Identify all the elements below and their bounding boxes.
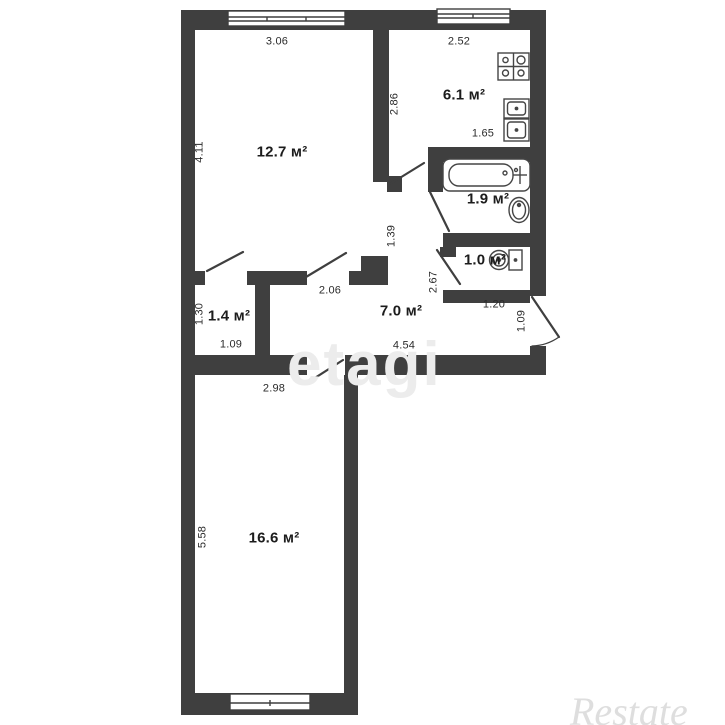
wall-bath-left bbox=[428, 147, 443, 192]
dim-wc-width: 1.20 bbox=[483, 300, 505, 311]
wall-living1-bottom-b bbox=[247, 271, 307, 285]
room-label-closet: 1.4 м² bbox=[208, 309, 250, 324]
wall-wc-left-stub bbox=[440, 247, 456, 257]
watermark-etagi: etagi bbox=[287, 329, 442, 400]
dim-entrance-width: 1.09 bbox=[517, 310, 528, 332]
room-label-living2: 16.6 м² bbox=[249, 531, 300, 546]
window-living2 bbox=[230, 694, 310, 710]
kitchen-sink-icon bbox=[504, 99, 529, 141]
room-label-bath: 1.9 м² bbox=[467, 192, 509, 207]
door-leaf-kitchen bbox=[390, 163, 424, 184]
dim-kitchen-width: 2.52 bbox=[448, 37, 470, 48]
bathtub-icon bbox=[443, 159, 530, 191]
window-kitchen bbox=[437, 9, 510, 24]
dim-living2-width: 2.98 bbox=[263, 384, 285, 395]
wall-right-lower bbox=[344, 375, 358, 715]
window-living1 bbox=[228, 11, 345, 26]
room-label-hall: 7.0 м² bbox=[380, 304, 422, 319]
dim-hall-top: 2.06 bbox=[319, 286, 341, 297]
wall-living1-bottom-a bbox=[195, 271, 205, 285]
dim-corridor-right: 2.67 bbox=[429, 271, 440, 293]
room-label-kitchen: 6.1 м² bbox=[443, 88, 485, 103]
wall-bath-wc-divider bbox=[443, 233, 530, 247]
wall-living1-kitchen-divider bbox=[373, 10, 389, 182]
floor-plan: 12.7 м² 6.1 м² 1.9 м² 1.0 м² 7.0 м² 1.4 … bbox=[0, 0, 725, 725]
dim-closet-width: 1.09 bbox=[220, 340, 242, 351]
wall-closet-right bbox=[255, 285, 270, 355]
room-label-wc: 1.0 м² bbox=[464, 253, 506, 268]
dim-kitchen-counter: 1.65 bbox=[472, 129, 494, 140]
door-leaf-living1 bbox=[306, 253, 346, 277]
dim-living2-height: 5.58 bbox=[198, 526, 209, 548]
wall-right-upper bbox=[530, 10, 546, 296]
dim-closet-height: 1.30 bbox=[195, 303, 206, 325]
dim-living1-height: 4.11 bbox=[195, 141, 206, 162]
door-arc-entrance bbox=[532, 337, 559, 346]
washbasin-icon bbox=[509, 198, 529, 223]
wall-hall-corner-piece bbox=[361, 256, 388, 285]
stove-icon bbox=[498, 53, 529, 80]
dim-living1-width: 3.06 bbox=[266, 37, 288, 48]
watermark-restate: Restate bbox=[570, 688, 688, 725]
door-leaf-bath bbox=[430, 192, 449, 231]
room-label-living1: 12.7 м² bbox=[257, 145, 308, 160]
dim-corridor-height: 1.39 bbox=[387, 225, 398, 247]
door-leaf-closet bbox=[207, 252, 243, 271]
dim-kitchen-height: 2.86 bbox=[390, 93, 401, 115]
door-leaf-entrance bbox=[532, 297, 559, 337]
